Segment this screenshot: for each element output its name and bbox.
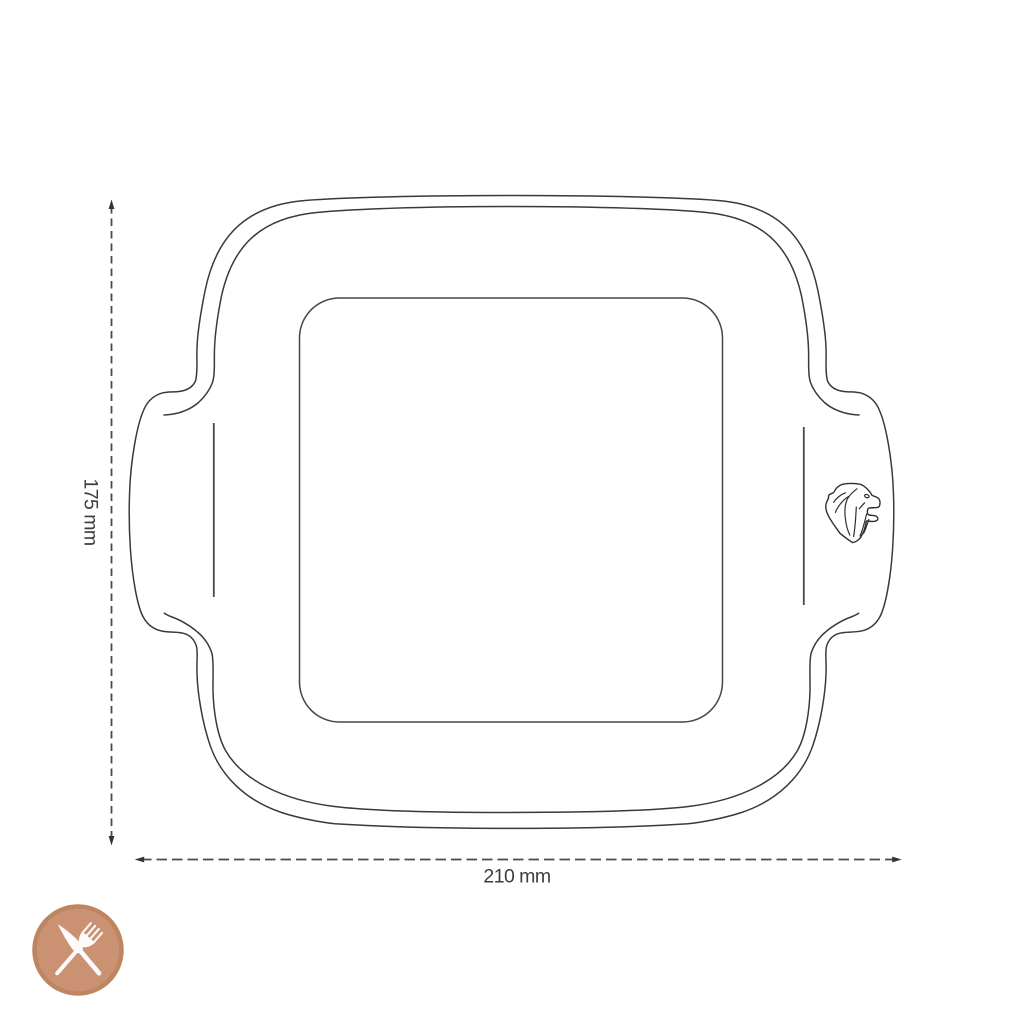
svg-text:175 mm: 175 mm — [80, 478, 102, 545]
svg-text:210 mm: 210 mm — [483, 866, 550, 888]
